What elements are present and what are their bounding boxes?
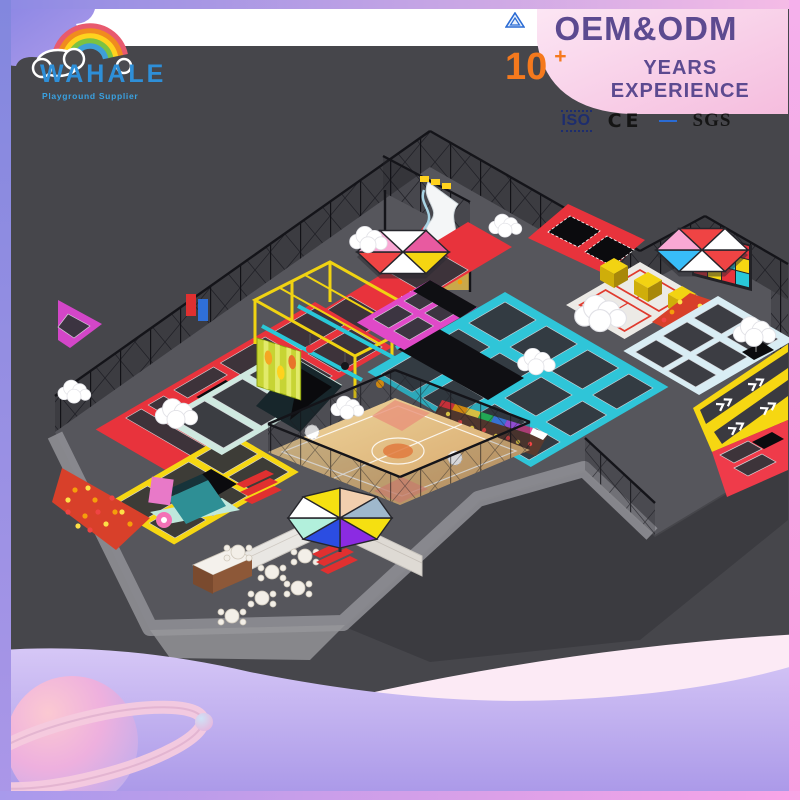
triangle-cert-icon — [659, 120, 677, 122]
years-plus: + — [554, 46, 566, 67]
years-label: YEARS EXPERIENCE — [574, 57, 787, 103]
certification-row: ISO CE SGS — [505, 110, 787, 132]
promo-image: .bed{fill:#34343a;stroke:#d6d6da;stroke-… — [0, 0, 800, 800]
frame-right — [789, 0, 800, 800]
frame-top — [0, 0, 800, 9]
brand-name: WAHALE — [40, 60, 166, 89]
banner: OEM&ODM 10 + YEARS EXPERIENCE ISO CE SGS — [505, 12, 787, 132]
banner-title: OEM&ODM — [505, 12, 787, 47]
sgs-cert-badge: SGS — [693, 110, 732, 132]
brand-tagline: Playground Supplier — [42, 91, 138, 101]
years-value: 10 — [505, 48, 547, 86]
ce-cert-badge: CE — [608, 110, 643, 132]
frame-bottom — [0, 791, 800, 800]
frame-left — [0, 0, 11, 800]
iso-cert-badge: ISO — [561, 110, 592, 132]
years-experience: 10 + YEARS EXPERIENCE — [505, 48, 787, 103]
